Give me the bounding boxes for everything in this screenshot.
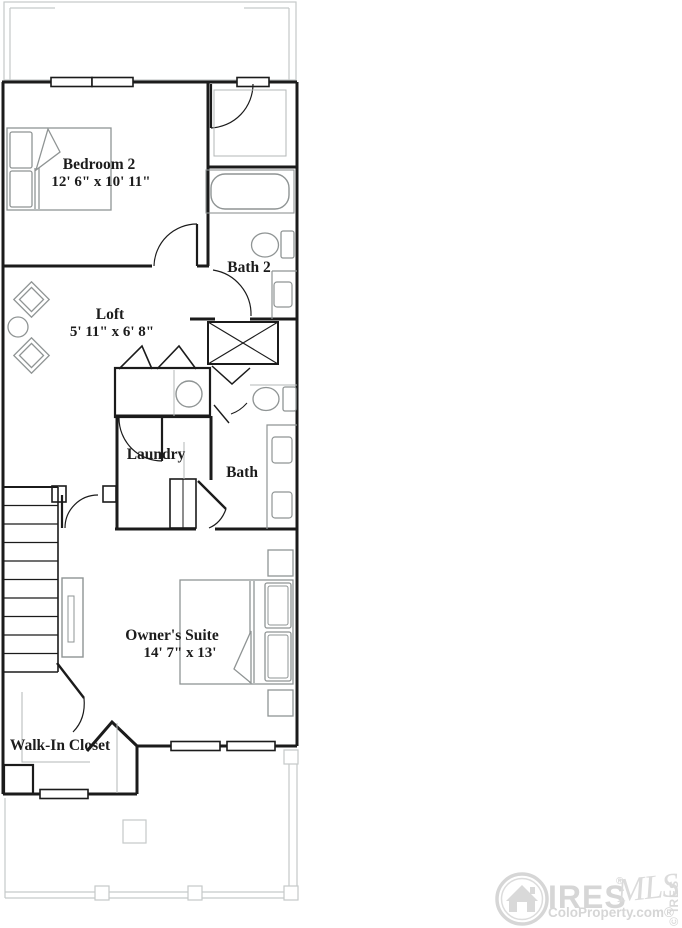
floorplan-page: Bedroom 2 12' 6" x 10' 11" Bath 2 Loft 5… <box>0 0 682 928</box>
bath2-sink-vanity <box>272 271 297 319</box>
utility-closet <box>115 346 210 417</box>
stairs <box>3 487 58 672</box>
deck-post <box>95 886 109 900</box>
deck-post <box>284 750 298 764</box>
bedroom2-dims: 12' 6" x 10' 11" <box>51 174 150 190</box>
nightstands <box>268 550 293 716</box>
shower-symbol <box>208 322 278 384</box>
bathtub-surround <box>206 170 294 213</box>
room-labels: Bedroom 2 12' 6" x 10' 11" Bath 2 Loft 5… <box>10 156 271 754</box>
bath-label: Bath <box>226 464 258 481</box>
watermark-side-text: © IRES <box>667 880 681 926</box>
deck-post <box>284 886 298 900</box>
linen-dresser-symbol <box>62 578 83 657</box>
lower-deck-outline <box>5 750 298 900</box>
house-chimney-icon <box>530 887 535 894</box>
loft-side-table <box>8 317 28 337</box>
bath2-toilet <box>252 231 295 258</box>
house-door-icon <box>517 902 527 912</box>
ires-watermark: IRES ® MLS ColoProperty.com® © IRES <box>497 867 681 926</box>
ires-logo-icon <box>497 874 547 924</box>
bath-double-vanity <box>267 425 297 529</box>
watermark-site: ColoProperty.com® <box>548 905 674 920</box>
bedroom2-label: Bedroom 2 <box>63 156 136 173</box>
walk-in-closet-label: Walk-In Closet <box>10 737 111 754</box>
water-heater-symbol <box>176 381 202 407</box>
owners-suite-label: Owner's Suite <box>125 627 219 644</box>
deck-post <box>188 886 202 900</box>
bath2-fixtures <box>206 170 297 319</box>
bath2-label: Bath 2 <box>227 259 271 276</box>
loft-label: Loft <box>96 306 125 323</box>
loft-chairs-symbol <box>8 282 49 373</box>
floorplan-drawing: Bedroom 2 12' 6" x 10' 11" Bath 2 Loft 5… <box>0 0 682 928</box>
laundry-label: Laundry <box>127 446 186 463</box>
upper-deck-outline <box>4 2 296 80</box>
bath-toilet <box>253 387 296 411</box>
bathtub <box>211 174 289 209</box>
bifold-doors <box>119 346 196 369</box>
owners-suite-dims: 14' 7" x 13' <box>144 645 217 661</box>
deck-column <box>123 820 146 843</box>
loft-dims: 5' 11" x 6' 8" <box>70 324 154 340</box>
